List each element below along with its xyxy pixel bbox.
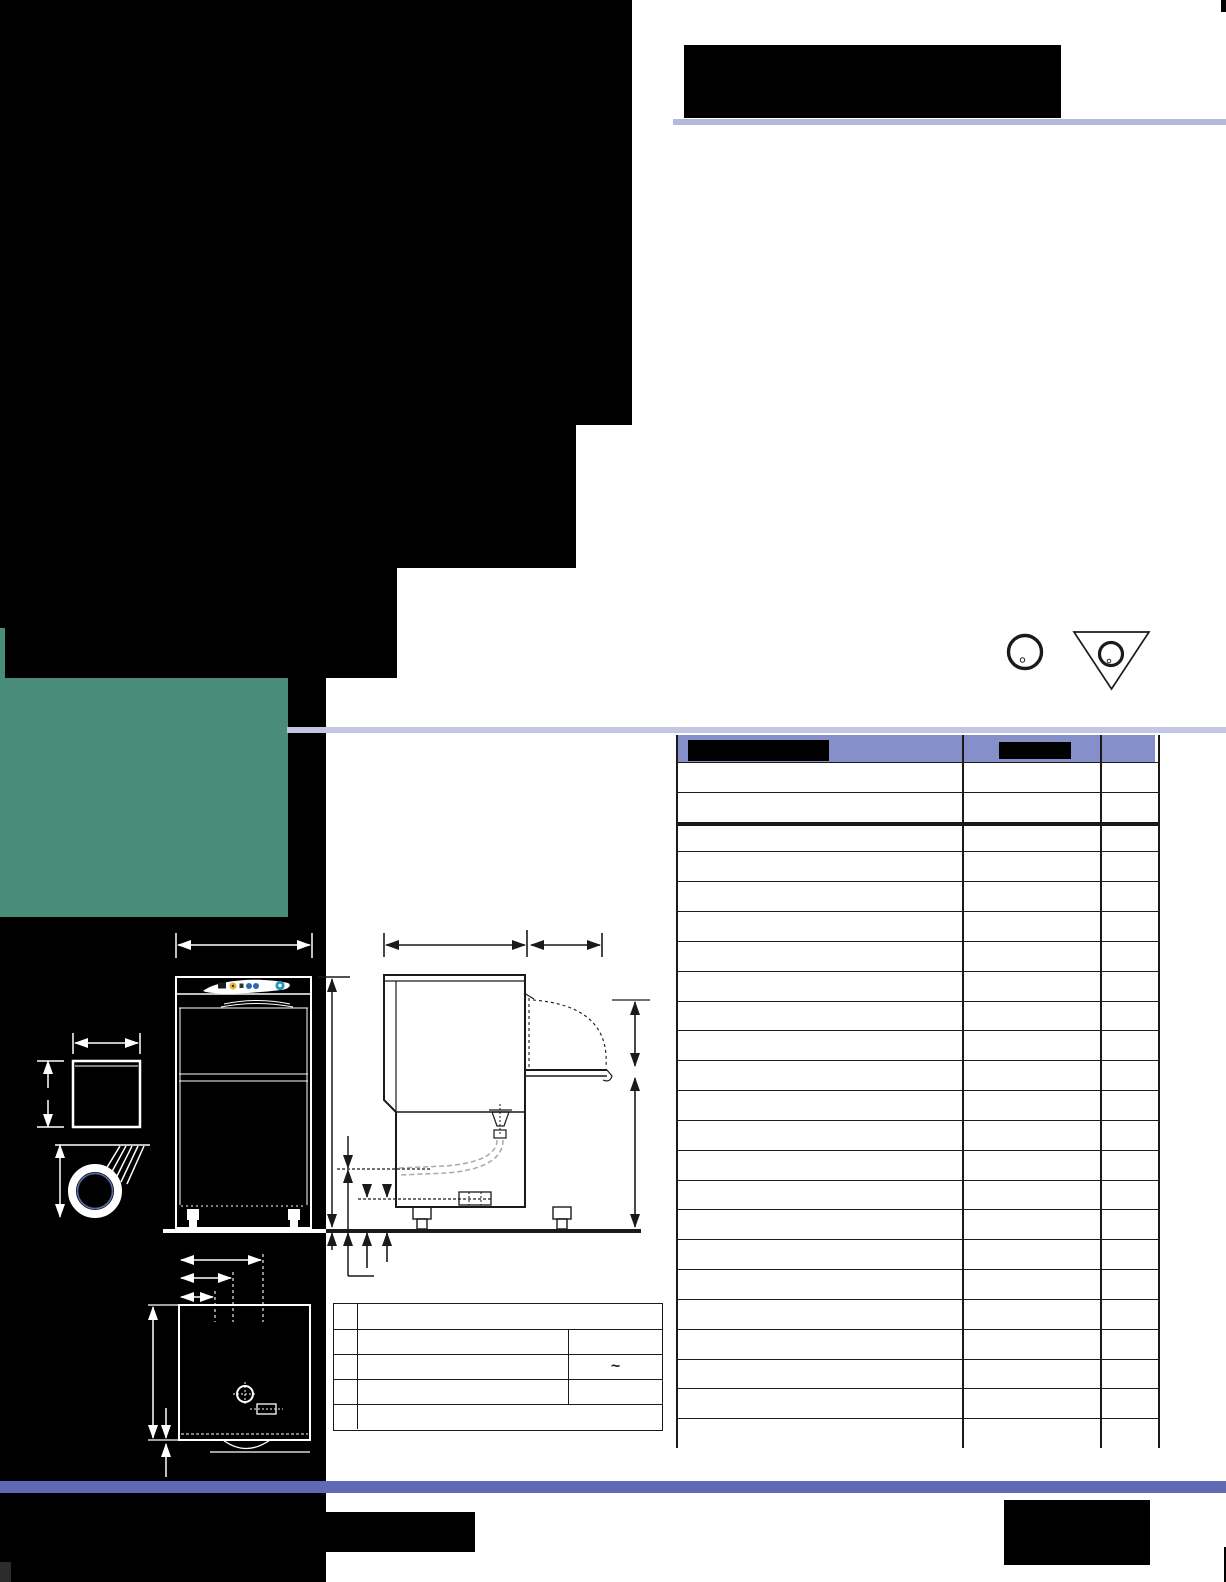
- green-accent-sliver: [0, 628, 5, 678]
- certification-symbols: [990, 615, 1160, 700]
- spec-table-row: [676, 1180, 1158, 1210]
- redacted-block-top-left-1: [0, 0, 632, 425]
- ground-line-right: [326, 1229, 641, 1233]
- spec-table-row: [676, 1090, 1158, 1120]
- spec-table-row: [676, 1299, 1158, 1329]
- side-view-drawing: [326, 930, 650, 1268]
- legend-row-label-cell: [358, 1304, 662, 1329]
- legend-row-label-cell: [358, 1330, 568, 1354]
- spec-table-row: [676, 1269, 1158, 1299]
- spec-table-row: [676, 762, 1158, 792]
- drain-hose-dashed: [399, 1140, 503, 1175]
- spec-table-row: [676, 1239, 1158, 1269]
- spec-table-row: [676, 881, 1158, 911]
- spec-table-row: [676, 1120, 1158, 1150]
- redacted-block-top-left-3: [0, 568, 397, 678]
- section-divider-rule: [287, 727, 1226, 733]
- legend-table-row: [334, 1404, 662, 1429]
- spec-table: [676, 735, 1158, 1448]
- footer-bar: [0, 1481, 1226, 1493]
- corner-fold-mark: [0, 1562, 11, 1582]
- green-accent-block: [0, 678, 288, 917]
- spec-table-right-border: [1158, 735, 1160, 1448]
- spec-table-col-divider-1: [962, 735, 964, 1448]
- legend-row-index-cell: [334, 1355, 358, 1379]
- spec-table-row: [676, 1388, 1158, 1418]
- spec-table-row: [676, 1209, 1158, 1239]
- spec-table-row: [676, 1329, 1158, 1359]
- legend-row-value-cell: [568, 1380, 662, 1404]
- redacted-header-label-2: [999, 742, 1071, 759]
- title-underline-rule: [673, 119, 1226, 125]
- legend-table-row: [334, 1304, 662, 1329]
- spec-table-col-divider-2: [1100, 735, 1102, 1448]
- spec-table-row: [676, 1359, 1158, 1389]
- drain-funnel: [489, 1104, 512, 1138]
- redacted-block-top-left-2: [0, 425, 576, 568]
- legend-table: ~: [333, 1303, 663, 1431]
- spec-table-row: [676, 792, 1158, 822]
- legend-table-row: [334, 1329, 662, 1354]
- side-feet: [413, 1207, 571, 1229]
- redacted-header-label-1: [688, 740, 829, 761]
- legend-row-index-cell: [334, 1304, 358, 1329]
- legend-table-row: [334, 1379, 662, 1404]
- spec-table-row: [676, 822, 1158, 852]
- legend-row-label-cell: [358, 1380, 568, 1404]
- spec-table-row: [676, 851, 1158, 881]
- spec-table-row: [676, 971, 1158, 1001]
- corner-notch: [1221, 0, 1226, 12]
- spec-table-row: [676, 1150, 1158, 1180]
- spec-table-body: [676, 762, 1158, 1448]
- legend-row-label-cell: [358, 1405, 662, 1429]
- spec-table-row: [676, 911, 1158, 941]
- legend-row-index-cell: [334, 1405, 358, 1429]
- spec-table-left-border: [676, 735, 678, 1448]
- legend-row-value-cell: ~: [568, 1355, 662, 1379]
- tilde-symbol: ~: [611, 1358, 620, 1376]
- legend-row-value-cell: [568, 1330, 662, 1354]
- redacted-page-title: [684, 45, 1061, 118]
- spec-table-row: [676, 1418, 1158, 1448]
- legend-row-index-cell: [334, 1380, 358, 1404]
- spec-table-header: [676, 735, 1155, 762]
- redacted-footer-left: [326, 1512, 475, 1552]
- spec-table-row: [676, 941, 1158, 971]
- spec-table-row: [676, 1060, 1158, 1090]
- spec-table-row: [676, 1030, 1158, 1060]
- legend-row-index-cell: [334, 1330, 358, 1354]
- spec-table-row: [676, 1001, 1158, 1031]
- height-dimension: [318, 977, 432, 1276]
- legend-row-label-cell: [358, 1355, 568, 1379]
- redacted-footer-right: [1004, 1500, 1150, 1565]
- circle-certification-icon: [1009, 636, 1042, 669]
- spec-sheet-page: ~: [0, 0, 1226, 1582]
- triangle-certification-icon: [1074, 632, 1149, 689]
- legend-table-row: ~: [334, 1354, 662, 1379]
